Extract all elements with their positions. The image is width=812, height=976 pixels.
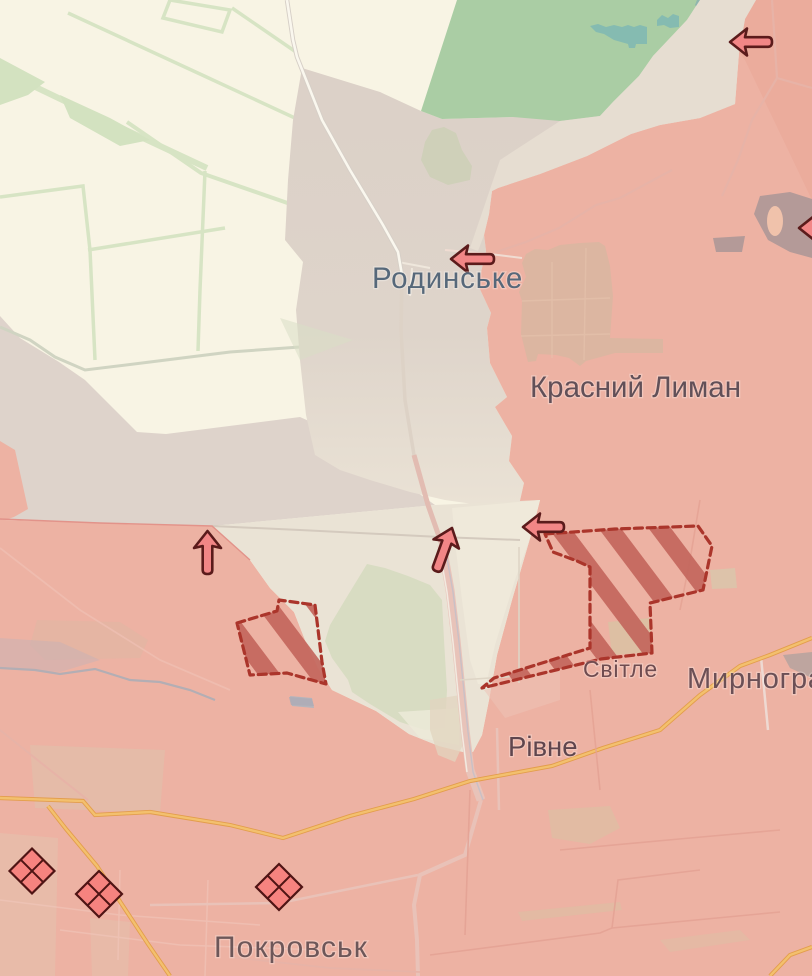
svg-text:Світле: Світле (583, 656, 658, 682)
svg-text:Покровськ: Покровськ (214, 931, 368, 964)
svg-text:Родинське: Родинське (372, 262, 523, 295)
svg-text:Мирноград: Мирноград (687, 663, 812, 695)
svg-text:Рівне: Рівне (508, 731, 578, 762)
svg-text:Красний Лиман: Красний Лиман (530, 371, 741, 404)
